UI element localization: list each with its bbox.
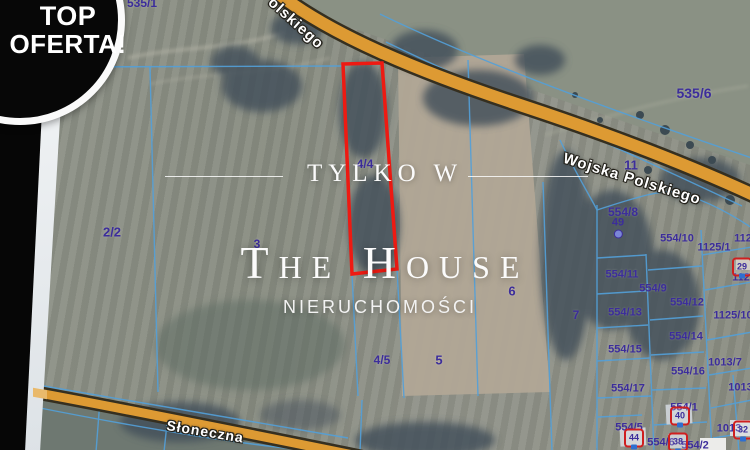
address-number: 32 xyxy=(738,426,748,435)
parcel-label: 554/14 xyxy=(669,332,703,343)
building-marker-29: 29 xyxy=(732,258,750,277)
parcel-label: 1125/10 xyxy=(713,311,750,322)
parcel-label: 554/9 xyxy=(639,284,667,295)
address-number: 38 xyxy=(673,438,683,447)
parcel-label: 554/12 xyxy=(670,298,704,309)
parcel-label: 554/15 xyxy=(608,345,642,356)
parcel-label: 4/5 xyxy=(374,354,391,366)
address-number: 44 xyxy=(629,434,639,443)
house-icon xyxy=(677,423,683,428)
parcel-label: 1013/7 xyxy=(708,358,742,369)
badge-line-top: TOP xyxy=(0,2,136,30)
building-marker-38: 38 xyxy=(668,433,688,450)
address-point-49: 49 xyxy=(612,218,624,239)
parcel-label: 1125 xyxy=(734,234,750,245)
parcel-label: 554/17 xyxy=(611,384,645,395)
parcel-label: 554/16 xyxy=(671,367,705,378)
parcel-label: 554/10 xyxy=(660,234,694,245)
parcel-label: 4/4 xyxy=(357,158,374,170)
house-icon xyxy=(739,274,745,279)
house-icon xyxy=(631,445,637,450)
address-number: 49 xyxy=(612,218,624,229)
address-number: 40 xyxy=(675,412,685,421)
point-icon xyxy=(614,230,623,239)
address-number: 29 xyxy=(737,263,747,272)
parcel-label: 5 xyxy=(435,354,442,367)
parcel-label: 6 xyxy=(508,285,515,298)
parcel-label: 7 xyxy=(573,309,580,321)
parcel-label: 3 xyxy=(254,238,261,250)
parcel-label: 2/2 xyxy=(103,226,121,239)
real-estate-ad: 535/1535/6112/234/44/5567554/8554/101125… xyxy=(0,0,750,450)
building-marker-40: 40 xyxy=(670,407,690,426)
building-marker-44: 44 xyxy=(624,429,644,448)
parcel-label: 554/11 xyxy=(605,270,638,281)
top-offer-badge-text: TOP OFERTA! xyxy=(0,2,136,59)
badge-line-oferta: OFERTA! xyxy=(0,30,136,59)
parcel-label: 554/13 xyxy=(608,308,642,319)
parcel-label: 1125/1 xyxy=(697,243,730,254)
house-icon xyxy=(740,437,746,442)
building-marker-32: 32 xyxy=(733,421,750,440)
parcel-label: 1013/ xyxy=(728,383,750,394)
parcel-label: 535/6 xyxy=(676,86,711,100)
